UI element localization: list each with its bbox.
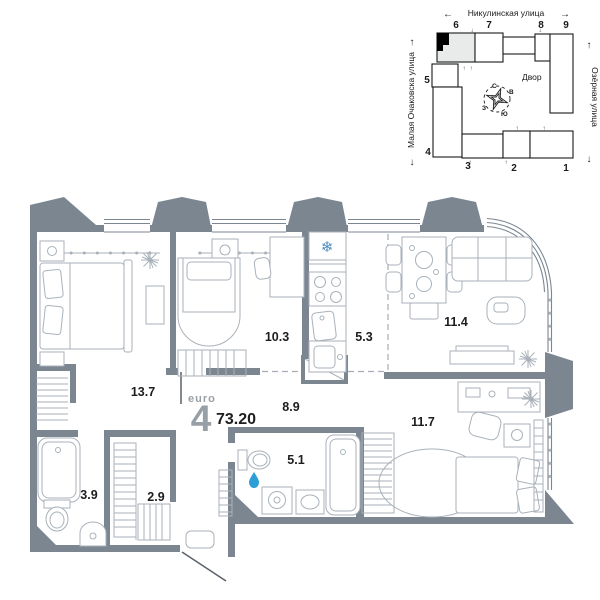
compass-rose-icon: С В З Ю <box>482 83 514 118</box>
room-area-bedroom-2: 10.3 <box>265 330 289 344</box>
fridge-snowflake-icon: ❄ <box>321 239 334 256</box>
toilet-tank <box>238 450 247 470</box>
compass-south-label: Ю <box>501 111 508 118</box>
bench <box>410 303 438 319</box>
pillow <box>516 457 541 485</box>
building-3-shape <box>462 134 503 158</box>
room-area-bedroom-1: 13.7 <box>131 385 155 399</box>
apartment-plan: ❄ <box>30 197 574 581</box>
shaft-corner-piece <box>235 495 258 517</box>
desk <box>270 237 304 297</box>
bathtub <box>326 435 360 515</box>
entrance-mark-icon: ↓ <box>471 28 474 34</box>
coffee-table <box>487 297 525 324</box>
building-2-shape <box>503 131 530 158</box>
street-label-left: Малая Очаковска улица <box>406 52 416 148</box>
room-area-bathroom-1: 3.9 <box>80 488 97 502</box>
wash-sink <box>80 522 106 546</box>
building-number-9: 9 <box>563 20 569 31</box>
dining-table <box>402 237 446 303</box>
pillow <box>43 269 64 299</box>
building-number-4: 4 <box>425 147 431 158</box>
dining-chair <box>386 245 401 265</box>
street-right-down-arrow-icon: ↓ <box>587 154 592 165</box>
floor-plan-page: Никулинская улица ← → Малая Очаковска ул… <box>0 0 600 600</box>
building-8-shape <box>535 34 550 61</box>
unit-total-area: 73.20 <box>216 411 256 428</box>
sink-basin <box>314 346 335 368</box>
entrance-mark-icon: ↑ <box>516 126 519 132</box>
mattress <box>456 457 518 513</box>
compass-east-label: В <box>509 89 514 96</box>
room-area-hallway: 8.9 <box>282 400 299 414</box>
plant-icon <box>141 251 159 269</box>
room-area-bathroom-2: 5.1 <box>287 453 304 467</box>
building-7-shape <box>475 33 503 62</box>
building-number-2: 2 <box>511 163 517 174</box>
compass-west-label: З <box>482 105 486 112</box>
bathroom-sink <box>296 490 324 514</box>
entrance-mark-icon: ↑ <box>543 126 546 132</box>
entrance-mark-icon: ↑ <box>463 66 466 72</box>
street-label-top: Никулинская улица <box>468 8 545 18</box>
toilet-bowl <box>46 507 68 531</box>
site-plan: Никулинская улица ← → Малая Очаковска ул… <box>406 8 600 174</box>
plant-icon <box>519 350 537 368</box>
corner-wall-piece <box>545 490 574 524</box>
entrance-mark-icon: ↑ <box>505 160 508 166</box>
plant-icon <box>522 390 540 408</box>
entrance-mark-icon: ↑ <box>470 66 473 72</box>
dresser <box>146 286 164 324</box>
nightstand <box>504 424 530 447</box>
room-area-bedroom-3: 11.7 <box>411 415 435 429</box>
building-1-shape <box>530 131 573 158</box>
bathroom-2-fixtures <box>238 435 360 515</box>
desk-chair <box>254 257 272 280</box>
street-arrow-right-icon: → <box>560 9 570 20</box>
floor-plan-canvas: Никулинская улица ← → Малая Очаковска ул… <box>0 0 600 600</box>
bed-footboard <box>124 260 132 352</box>
courtyard-label: Двор <box>522 72 542 82</box>
cutting-board <box>311 311 336 341</box>
street-label-right: Озёрная улица <box>590 67 600 127</box>
hallway-items <box>186 470 232 548</box>
closet-niche <box>36 378 68 420</box>
site-buildings <box>432 33 573 158</box>
entrance-mark-icon: ↑ <box>469 160 472 166</box>
bedroom-1-furniture <box>40 241 164 366</box>
street-right-up-arrow-icon: ↑ <box>587 40 592 51</box>
building-number-7: 7 <box>486 20 492 31</box>
room-area-kitchen: 5.3 <box>355 330 372 344</box>
doormat <box>186 531 214 548</box>
building-number-5: 5 <box>424 75 430 86</box>
hanger-rack <box>138 504 170 540</box>
bedroom-3-furniture <box>362 382 543 517</box>
building-9-shape <box>550 34 573 113</box>
room-area-wardrobe: 2.9 <box>147 490 164 504</box>
building-4-shape <box>433 87 462 157</box>
street-left-up-arrow-icon: ↑ <box>410 37 415 48</box>
tv-stand <box>450 351 514 364</box>
sofa <box>452 237 532 281</box>
pillow <box>187 262 231 280</box>
building-7-8-connector <box>503 37 535 54</box>
dining-chair <box>386 272 401 292</box>
nightstand <box>40 241 64 261</box>
building-5-shape <box>432 64 458 87</box>
compass-north-label: С <box>492 83 497 90</box>
bedroom-2-furniture <box>178 237 304 376</box>
room-area-living-room: 11.4 <box>444 315 468 329</box>
kitchen-fixtures: ❄ <box>309 232 346 372</box>
pillow <box>43 305 64 335</box>
entrance-door-swing <box>182 552 226 581</box>
street-left-down-arrow-icon: ↓ <box>410 157 415 168</box>
building-number-1: 1 <box>563 163 569 174</box>
desk-chair <box>468 411 503 442</box>
building-number-6: 6 <box>453 20 459 31</box>
tv-screen <box>456 346 508 351</box>
unit-rooms-count: 4 <box>191 398 212 439</box>
street-arrow-left-icon: ← <box>443 9 453 20</box>
nightstand <box>40 352 64 366</box>
right-bay-volume <box>545 352 573 418</box>
water-drop-icon <box>249 472 259 488</box>
entrance-mark-icon: ↓ <box>539 28 542 34</box>
living-room-furniture <box>386 237 537 368</box>
